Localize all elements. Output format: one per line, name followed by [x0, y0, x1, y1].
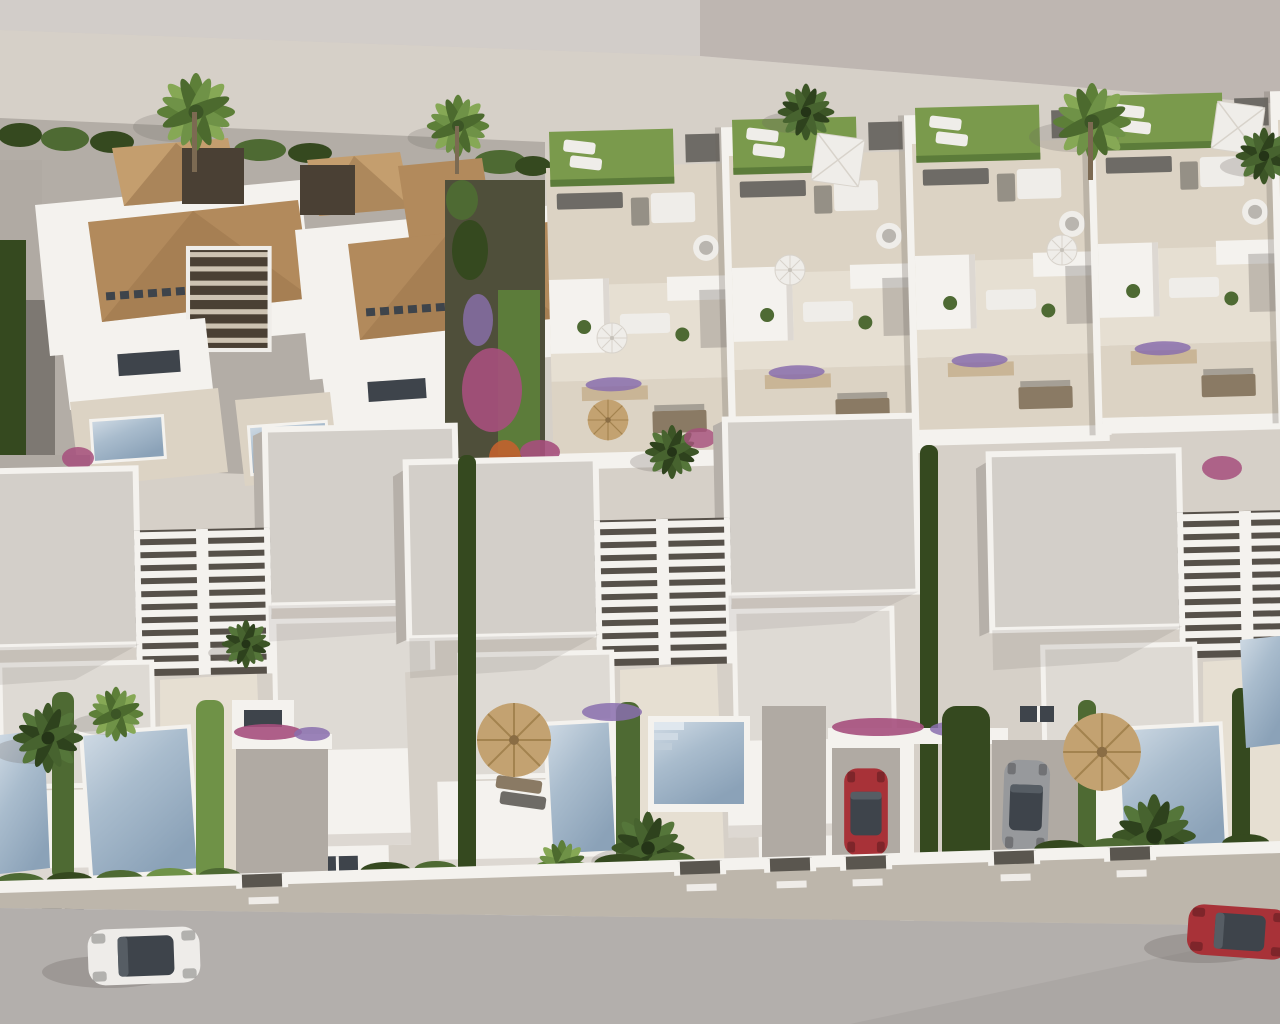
townhouse-unit-3 [911, 103, 1112, 446]
white-canopy-icon [811, 133, 865, 187]
white-parasol-icon [1047, 235, 1077, 265]
divider-hedge [920, 445, 938, 865]
straw-parasol-icon [477, 703, 551, 777]
swimming-pool-partial [1240, 636, 1280, 748]
dark-pergola [300, 165, 355, 215]
garden-strip [445, 180, 545, 485]
hedge-strip [196, 700, 224, 882]
red-car-carport [844, 768, 888, 855]
red-car-road [1186, 903, 1280, 960]
bougainvillea [462, 348, 522, 432]
architectural-render: Aerial 3D architectural render of a coas… [0, 0, 1280, 1024]
straw-parasol-icon [1063, 713, 1141, 791]
glass-door [117, 350, 180, 376]
left-boundary-hedge [0, 240, 26, 480]
flower-planter [582, 703, 642, 721]
straw-parasol-icon [588, 400, 629, 441]
flower-planter [832, 718, 924, 736]
white-parasol-icon [775, 255, 805, 285]
glass-door [367, 378, 426, 402]
carport-1 [232, 700, 332, 888]
silver-car [1001, 759, 1050, 852]
white-parasol-icon [597, 323, 627, 353]
divider-hedge [458, 455, 476, 875]
townhouse-row [545, 79, 1280, 470]
flower-planter [234, 724, 302, 740]
white-car-road [87, 926, 201, 986]
driveway [236, 748, 328, 888]
dark-pergola [182, 148, 244, 204]
swimming-pool [81, 726, 199, 877]
swimming-pool [545, 720, 618, 855]
townhouse-unit-1 [545, 127, 746, 470]
render-canvas: Aerial 3D architectural render of a coas… [0, 0, 1280, 1024]
pool-villa1 [91, 416, 166, 463]
pool-garden-3 [648, 716, 750, 812]
